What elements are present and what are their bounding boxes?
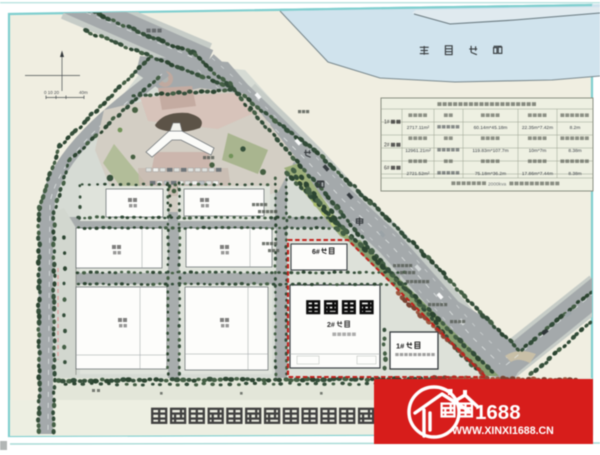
svg-text:2000kva: 2000kva xyxy=(488,182,506,188)
svg-text:2717.11m²: 2717.11m² xyxy=(407,125,430,131)
svg-text:1#: 1# xyxy=(384,120,390,126)
svg-text:2721.52m²: 2721.52m² xyxy=(407,171,430,177)
svg-text:WWW.XINXI1688.CN: WWW.XINXI1688.CN xyxy=(452,425,554,437)
svg-text:8.38m: 8.38m xyxy=(568,171,581,177)
svg-text:1688: 1688 xyxy=(475,401,521,424)
svg-text:2#: 2# xyxy=(327,322,335,329)
svg-text:40m: 40m xyxy=(79,90,88,95)
svg-text:2#: 2# xyxy=(384,143,390,149)
svg-text:6#: 6# xyxy=(384,166,390,172)
svg-text:22.35m*7.42m: 22.35m*7.42m xyxy=(522,125,553,131)
svg-text:60.14m*45.18m: 60.14m*45.18m xyxy=(474,125,508,131)
svg-text:75.18m*36.2m: 75.18m*36.2m xyxy=(475,171,506,177)
svg-text:6#: 6# xyxy=(312,249,320,256)
svg-text:8.2m: 8.2m xyxy=(570,125,581,131)
svg-text:10m*7m: 10m*7m xyxy=(529,148,547,154)
svg-text:8.38m: 8.38m xyxy=(568,148,581,154)
svg-text:119.83m*107.7m: 119.83m*107.7m xyxy=(472,148,508,154)
svg-text:0 10 20: 0 10 20 xyxy=(44,90,60,95)
svg-text:17.86m*7.44m: 17.86m*7.44m xyxy=(522,171,553,177)
svg-text:12961.21m²: 12961.21m² xyxy=(405,148,431,154)
svg-text:1#: 1# xyxy=(396,342,405,351)
